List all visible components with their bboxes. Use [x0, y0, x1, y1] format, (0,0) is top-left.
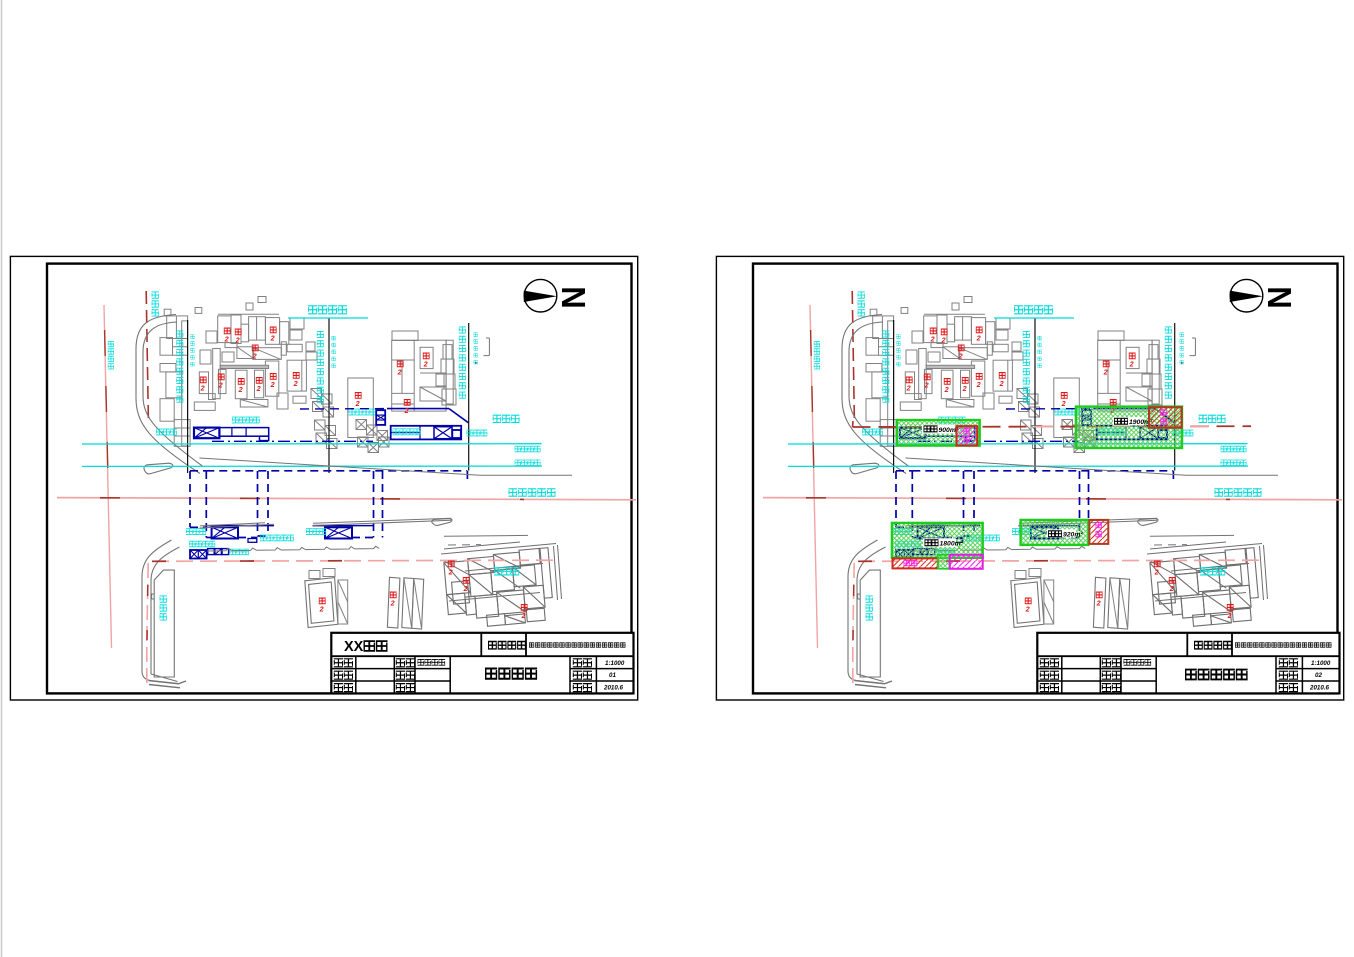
svg-text:01: 01	[609, 672, 616, 679]
svg-text:1800m²: 1800m²	[940, 541, 964, 548]
svg-text:02: 02	[1315, 672, 1322, 679]
svg-text:920m²: 920m²	[1063, 532, 1083, 539]
svg-text:XX: XX	[344, 639, 364, 655]
